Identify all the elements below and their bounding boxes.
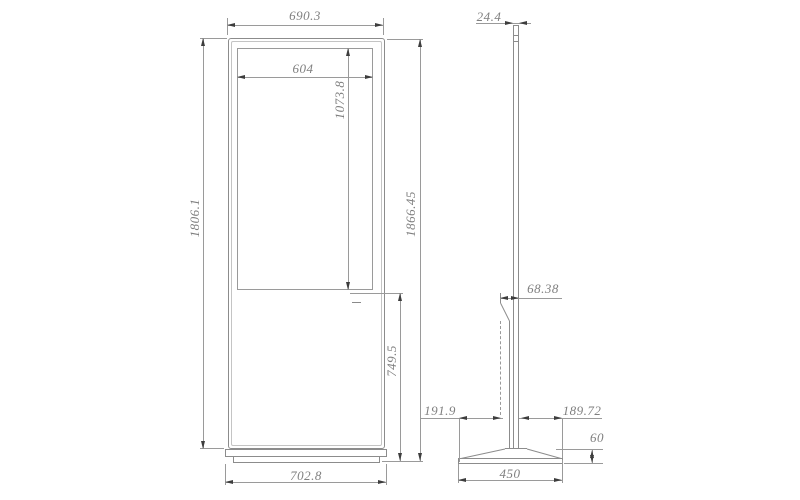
dim-label-housing-depth: 68.38 [527, 281, 559, 297]
dim-label-front-width: 690.3 [289, 8, 321, 24]
dim-arrow [554, 478, 562, 482]
dim-arrow [500, 296, 508, 300]
dim-line-screen-width [237, 77, 373, 78]
dim-label-body-height: 1806.1 [187, 199, 203, 238]
dim-arrow [201, 38, 205, 46]
ext-line [562, 418, 563, 458]
dim-label-panel-thickness: 24.4 [477, 9, 502, 25]
dim-label-screen-height: 1073.8 [332, 81, 348, 120]
dim-label-screen-width: 604 [293, 61, 314, 77]
screen-bottom-marker [352, 302, 361, 303]
side-view-base-collar [505, 448, 527, 449]
ext-line [386, 464, 387, 485]
dim-arrow [398, 453, 402, 461]
dim-label-base-rear: 191.9 [424, 403, 456, 419]
dim-arrow [418, 39, 422, 47]
dim-arrow [225, 480, 233, 484]
dim-line-body-height [203, 38, 204, 449]
dim-arrow [375, 23, 383, 27]
side-view-hidden-edge [500, 321, 501, 415]
dim-label-base-height: 60 [590, 430, 604, 446]
dim-arrow [458, 478, 466, 482]
dim-label-lower-height: 749.5 [384, 345, 400, 377]
side-view-panel-outline [513, 25, 519, 449]
dim-line-front-width [227, 25, 383, 26]
ext-line [564, 463, 603, 464]
dim-arrow [346, 48, 350, 56]
dim-line-overall-height [420, 39, 421, 461]
dim-label-base-front: 189.72 [563, 403, 602, 419]
dim-arrow [521, 416, 529, 420]
dim-arrow [493, 416, 501, 420]
ext-line [459, 418, 460, 462]
dim-arrow [227, 23, 235, 27]
dim-arrow [378, 480, 386, 484]
ext-line [383, 18, 384, 35]
front-view-plinth-lower [233, 456, 380, 463]
dim-arrow [519, 21, 527, 25]
dim-line-screen-height [348, 48, 349, 290]
dim-arrow [505, 21, 513, 25]
ext-line [562, 460, 563, 483]
dim-arrow [459, 416, 467, 420]
side-view-top-module [513, 35, 519, 42]
dim-arrow [398, 293, 402, 301]
dim-arrow [346, 282, 350, 290]
dim-arrow [511, 296, 519, 300]
dim-arrow [201, 441, 205, 449]
ext-line [556, 449, 603, 450]
dim-arrow [418, 453, 422, 461]
ext-line [382, 461, 423, 462]
side-view-housing-back-edge [509, 321, 510, 449]
dim-arrow [237, 75, 245, 79]
drawing-canvas: 690.3 604 1073.8 1806.1 1866.45 749.5 70… [0, 0, 800, 500]
dim-arrow [554, 416, 562, 420]
dim-arrow [590, 455, 594, 463]
dim-line-lower-height [400, 293, 401, 461]
dim-label-base-depth: 450 [500, 466, 521, 482]
dim-line-housing-depth [500, 298, 562, 299]
dim-arrow [365, 75, 373, 79]
dim-label-overall-height: 1866.45 [403, 191, 419, 237]
ext-line [350, 293, 403, 294]
front-view-screen-outline [237, 48, 373, 290]
dim-label-base-width: 702.8 [290, 468, 322, 484]
side-view-base-plate [458, 458, 563, 464]
